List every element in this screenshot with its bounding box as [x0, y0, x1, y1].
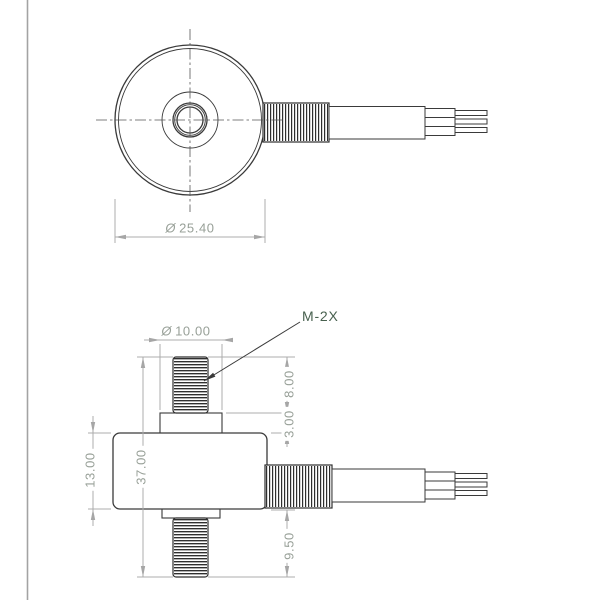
cable-gland-front-view	[265, 465, 332, 508]
top-boss	[160, 413, 222, 434]
cable-front-view	[332, 469, 487, 502]
dim-outer-diameter-text: Ø25.40	[165, 221, 214, 236]
drawing-linework	[0, 0, 600, 600]
cable-top-view	[329, 107, 487, 140]
dim-body-height-text: 13.00	[83, 449, 98, 491]
diameter-symbol: Ø	[161, 324, 172, 339]
drawing-sheet: Ø25.40 Ø10.00 M-2X 8.00 3.00 37.00 13.00…	[0, 0, 600, 600]
dim-stud-top-length-text: 8.00	[282, 367, 297, 401]
top-threaded-stud	[173, 357, 208, 413]
bottom-boss	[162, 509, 220, 519]
top-view	[96, 29, 487, 243]
dim-boss-height-text: 3.00	[282, 407, 297, 441]
dim-stud-bottom-length-text: 9.50	[282, 529, 297, 563]
dim-overall-height-text: 37.00	[134, 446, 149, 488]
cable-gland-top-view	[263, 103, 329, 142]
dim-boss-diameter-text: Ø10.00	[161, 324, 210, 339]
bottom-threaded-stud	[173, 518, 208, 577]
diameter-symbol: Ø	[165, 221, 176, 236]
thread-callout-text: M-2X	[302, 308, 339, 324]
